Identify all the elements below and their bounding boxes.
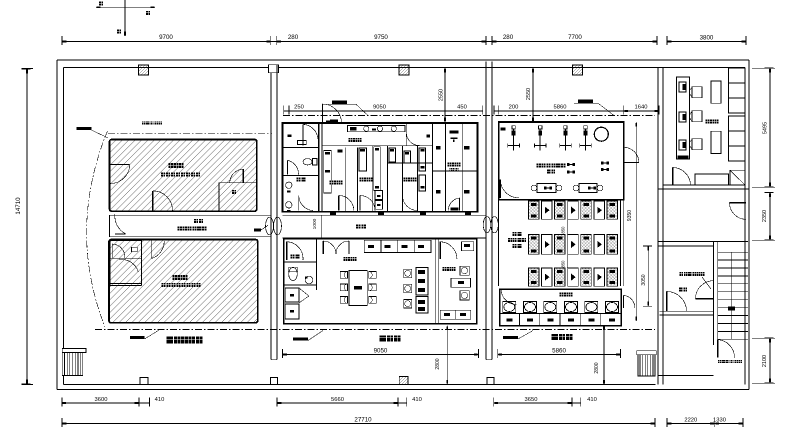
svg-text:2550: 2550 — [439, 89, 445, 101]
svg-text:200: 200 — [509, 105, 519, 111]
svg-text:410: 410 — [155, 397, 165, 403]
svg-text:7700: 7700 — [568, 34, 582, 41]
svg-text:9750: 9750 — [374, 34, 388, 41]
svg-text:850: 850 — [561, 260, 566, 268]
svg-text:27710: 27710 — [354, 417, 372, 424]
svg-text:5495: 5495 — [763, 122, 769, 134]
svg-text:3800: 3800 — [700, 35, 714, 42]
svg-text:1330: 1330 — [713, 418, 726, 424]
svg-text:280: 280 — [288, 34, 299, 41]
svg-text:14710: 14710 — [15, 197, 22, 215]
svg-text:9050: 9050 — [373, 105, 386, 111]
svg-text:2100: 2100 — [762, 355, 768, 367]
svg-text:5860: 5860 — [552, 348, 566, 355]
svg-text:9700: 9700 — [159, 34, 173, 41]
svg-text:5660: 5660 — [331, 397, 344, 403]
svg-text:2220: 2220 — [684, 418, 697, 424]
svg-text:1000: 1000 — [312, 218, 318, 229]
svg-text:850: 850 — [561, 226, 566, 234]
svg-text:450: 450 — [457, 105, 467, 111]
svg-text:2800: 2800 — [435, 358, 441, 369]
svg-text:3050: 3050 — [641, 274, 647, 285]
svg-text:9350: 9350 — [627, 210, 633, 221]
svg-text:5860: 5860 — [554, 105, 567, 111]
svg-text:410: 410 — [412, 397, 422, 403]
svg-text:1640: 1640 — [635, 105, 648, 111]
svg-text:2550: 2550 — [526, 88, 532, 100]
svg-text:280: 280 — [503, 34, 514, 41]
svg-text:250: 250 — [294, 105, 304, 111]
svg-text:3600: 3600 — [95, 397, 108, 403]
svg-text:2800: 2800 — [594, 362, 600, 373]
svg-text:2350: 2350 — [762, 210, 768, 222]
svg-text:9050: 9050 — [374, 348, 388, 355]
svg-text:3650: 3650 — [525, 397, 538, 403]
svg-text:410: 410 — [587, 397, 597, 403]
